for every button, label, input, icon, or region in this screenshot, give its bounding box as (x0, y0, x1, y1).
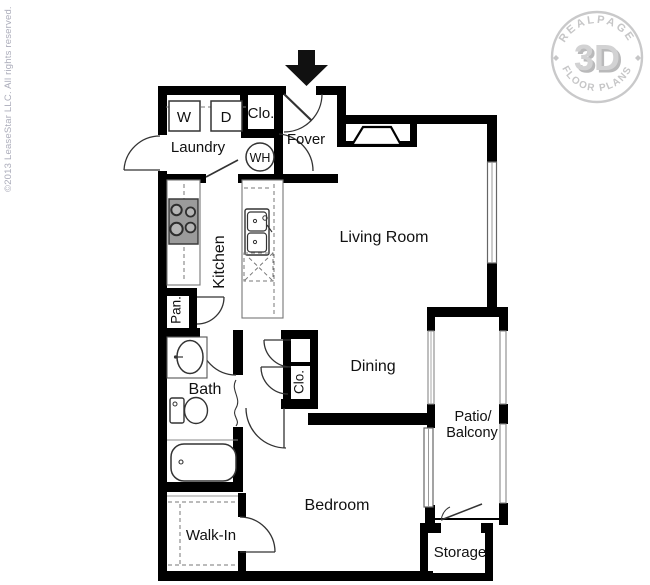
storage-door (441, 504, 482, 520)
label-washer: W (177, 109, 192, 126)
kitchen-sink (245, 209, 272, 255)
stove (169, 199, 198, 244)
label-laundry: Laundry (171, 139, 226, 156)
label-bedroom: Bedroom (305, 497, 370, 514)
pantry-door (197, 297, 224, 324)
floor-plan-svg: Living Room Dining Bedroom Bath Kitchen … (0, 0, 650, 585)
logo-diamond-right (635, 55, 641, 61)
label-dryer: D (221, 109, 232, 126)
room-labels: Living Room Dining Bedroom Bath Kitchen … (169, 105, 499, 561)
fireplace (346, 124, 410, 145)
label-dining: Dining (350, 358, 395, 375)
bedroom-sliding-door (424, 428, 433, 507)
label-pantry: Pan. (169, 296, 184, 324)
bath-sink (167, 337, 207, 378)
label-closet-foyer: Clo. (248, 105, 275, 122)
patio-rail-lower (500, 424, 506, 503)
dining-window (428, 331, 434, 404)
label-water-heater: WH (250, 151, 271, 165)
living-room-window (488, 162, 497, 263)
logo-diamond-left (553, 55, 559, 61)
label-bath: Bath (189, 381, 222, 398)
label-patio-line1: Patio/ (454, 409, 492, 425)
toilet (170, 398, 208, 424)
label-storage: Storage (434, 544, 487, 561)
entry-door (284, 94, 322, 132)
label-patio-line2: Balcony (446, 425, 498, 441)
walk-in-door (240, 517, 275, 552)
copyright-text: ©2013 LeaseStar LLC. All rights reserved… (3, 6, 14, 192)
windows (424, 162, 506, 507)
label-closet-hall: Clo. (292, 370, 307, 394)
laundry-kitchen-door (206, 160, 238, 177)
realpage-3d-logo: 3D 3D REALPAGE FLOOR PLANS (552, 12, 642, 102)
label-living-room: Living Room (340, 229, 429, 246)
label-walk-in: Walk-In (186, 527, 236, 544)
laundry-exterior-door (124, 136, 160, 170)
entry-arrow-icon (285, 50, 328, 86)
label-foyer: Fover (287, 131, 325, 148)
label-kitchen: Kitchen (211, 235, 228, 288)
logo-3d: 3D (574, 37, 620, 78)
bathtub (171, 444, 236, 481)
patio-rail-upper (500, 331, 506, 404)
bedroom-door (246, 408, 286, 448)
floor-plan-page: ©2013 LeaseStar LLC. All rights reserved… (0, 0, 650, 585)
